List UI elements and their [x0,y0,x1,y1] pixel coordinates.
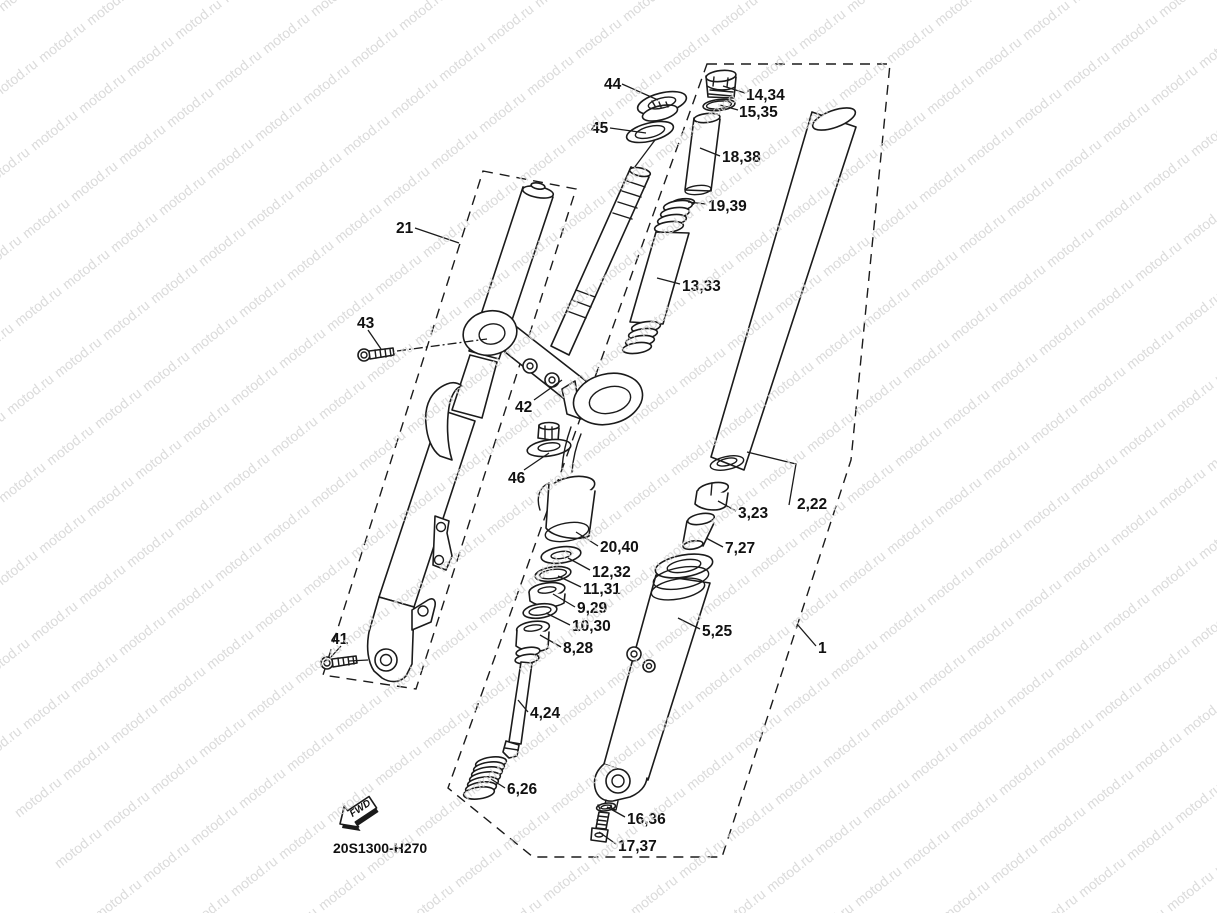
damper-rod-drawing [503,646,541,758]
part-label-12-32: 12,32 [592,564,631,581]
oil-lock-piece-drawing [682,512,715,551]
washer-ring-10-drawing [522,602,558,621]
part-label-13-33: 13,33 [682,278,721,295]
part-label-43: 43 [357,315,375,332]
drawing-code: 20S1300-H270 [333,840,427,856]
part-label-7-27: 7,27 [725,540,755,557]
fork-spring-drawing [622,199,693,355]
part-label-15-35: 15,35 [739,104,778,121]
part-label-6-26: 6,26 [507,781,538,798]
part-label-41: 41 [331,631,349,648]
cap-bolt-drawing [706,69,737,98]
part-label-46: 46 [508,470,526,487]
part-label-16-36: 16,36 [627,811,666,828]
part-label-42: 42 [515,399,532,416]
part-label-8-28: 8,28 [563,640,594,657]
part-label-9-29: 9,29 [577,600,608,617]
part-label-14-34: 14,34 [746,87,785,104]
part-label-2-22: 2,22 [797,496,827,513]
part-label-17-37: 17,37 [618,838,657,855]
part-label-19-39: 19,39 [708,198,747,215]
part-label-45: 45 [591,120,609,137]
part-label-21: 21 [396,220,414,237]
slide-bushing-8-drawing [516,619,550,651]
part-label-5-25: 5,25 [702,623,733,640]
oil-seal-9-drawing [528,581,566,607]
part-label-18-38: 18,38 [722,149,761,166]
axle-pinch-bolt-41-drawing [321,656,357,669]
fwd-direction-arrow: FWD [340,797,379,832]
fork-parts-diagram: FWD 20S1300-H270 444514,3415,3518,3819,3… [0,0,1217,913]
left-fork-leg-drawing [368,182,555,682]
lower-bushing-drawing [695,480,729,510]
part-label-4-24: 4,24 [530,705,561,722]
part-label-3-23: 3,23 [738,505,769,522]
o-ring-drawing [703,98,736,112]
part-label-10-30: 10,30 [572,618,611,635]
rebound-spring-drawing [463,755,507,801]
part-number-labels: 444514,3415,3518,3819,3913,332143424620,… [331,76,827,855]
parts-catalog-page: FWD 20S1300-H270 444514,3415,3518,3819,3… [0,0,1217,913]
part-label-11-31: 11,31 [583,581,621,598]
part-label-20-40: 20,40 [600,539,639,556]
part-label-44: 44 [604,76,622,93]
part-label-1: 1 [818,640,827,657]
